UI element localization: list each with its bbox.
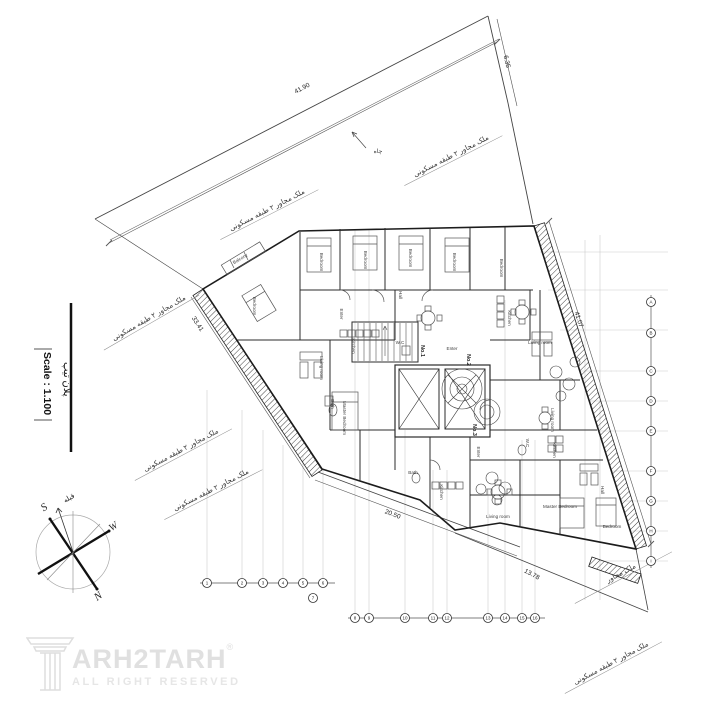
room-label: Bath — [408, 470, 418, 475]
svg-text:11: 11 — [431, 616, 436, 621]
svg-text:Bedroom: Bedroom — [319, 253, 324, 272]
svg-text:Kitchen: Kitchen — [439, 484, 444, 500]
svg-text:ملک مجاور ۲ طبقه مسکونی: ملک مجاور ۲ طبقه مسکونی — [572, 639, 650, 686]
dimension-lines — [106, 19, 654, 556]
svg-text:Living room: Living room — [486, 514, 510, 519]
svg-text:16: 16 — [532, 616, 538, 621]
svg-text:13.78: 13.78 — [523, 568, 541, 582]
well-leader — [352, 132, 366, 148]
grid-bubble: 16 — [531, 614, 540, 623]
logo-brand: ARH2TARH — [72, 644, 227, 674]
stair-core — [352, 322, 418, 362]
svg-text:Hall: Hall — [600, 486, 605, 494]
svg-text:ملک مجاور ۲ طبقه مسکونی: ملک مجاور ۲ طبقه مسکونی — [110, 293, 187, 343]
room-label: W.C — [396, 340, 405, 345]
logo-tagline: ALL RIGHT RESERVED — [72, 676, 241, 688]
compass-label: S — [39, 501, 51, 514]
room-label: Bath — [330, 399, 335, 409]
room-label: Bedroom — [319, 253, 324, 272]
svg-text:Bedroom: Bedroom — [603, 524, 622, 529]
boundary-note: ملک مجاور ۲ طبقه مسکونی — [560, 633, 662, 693]
grid-bubble: 11 — [429, 614, 438, 623]
grid-bubble: 12 — [443, 614, 452, 623]
svg-text:13: 13 — [485, 616, 491, 621]
svg-text:ملک مجاور ۲ طبقه مسکونی: ملک مجاور ۲ طبقه مسکونی — [142, 426, 220, 473]
svg-text:41.90: 41.90 — [293, 82, 311, 96]
boundary-note: ملک مجاور ۲ طبقه مسکونی — [400, 127, 503, 186]
svg-text:Bath: Bath — [408, 470, 418, 475]
svg-text:Bedroom: Bedroom — [363, 251, 368, 270]
grid-bubble: 6 — [319, 579, 328, 588]
grid-bubble: H — [647, 527, 656, 536]
boundary-note: ملک مجاور ۲ طبقه مسکونی — [99, 286, 199, 350]
grid-bubble: C — [647, 367, 656, 376]
svg-text:H: H — [649, 529, 652, 534]
svg-text:N: N — [91, 589, 105, 604]
boundary-note: ملک مجاور — [570, 543, 672, 603]
column-icon — [26, 634, 76, 694]
scale-label: Scale : 1.100 — [41, 352, 53, 415]
svg-text:Enter: Enter — [447, 346, 458, 351]
grid-bubble: 3 — [259, 579, 268, 588]
room-label: Living room — [528, 340, 552, 345]
registered-mark: ® — [227, 642, 234, 652]
svg-text:No.3: No.3 — [471, 424, 477, 436]
compass-label: قبله — [62, 492, 76, 505]
title-block: Scale : 1.100 پلان تیپ — [34, 303, 72, 452]
room-label: Bedroom — [499, 259, 504, 278]
room-label: Kitchen — [351, 338, 356, 354]
grid-bubble: 1 — [203, 579, 212, 588]
svg-text:No.1: No.1 — [419, 345, 425, 357]
svg-text:Bedroom: Bedroom — [499, 259, 504, 278]
svg-text:ملک مجاور ۲ طبقه مسکونی: ملک مجاور ۲ طبقه مسکونی — [172, 467, 251, 513]
svg-text:6.35: 6.35 — [502, 55, 512, 69]
dimension-label: 33.41 — [190, 315, 205, 333]
room-label: Master Bedroom — [342, 401, 347, 435]
grid-bubble: A — [647, 298, 656, 307]
room-label: Hall — [398, 291, 403, 299]
grid-bubble: 8 — [351, 614, 360, 623]
unit-label: No.3 — [471, 424, 477, 436]
grid-bubble: I — [647, 557, 656, 566]
dimension-label: 20.50 — [384, 508, 402, 520]
grid-bubble: 10 — [401, 614, 410, 623]
svg-text:Living room: Living room — [319, 356, 324, 380]
svg-text:G: G — [649, 499, 653, 504]
svg-text:ملک مجاور ۲ طبقه مسکونی: ملک مجاور ۲ طبقه مسکونی — [228, 187, 307, 233]
dining-table — [417, 306, 442, 330]
svg-text:33.41: 33.41 — [190, 315, 205, 333]
svg-text:E: E — [649, 429, 652, 434]
site-note: چاه — [374, 148, 383, 155]
dining-table — [511, 300, 536, 324]
svg-text:20.50: 20.50 — [384, 508, 402, 520]
grid-bubble: B — [647, 329, 656, 338]
svg-text:Bath: Bath — [330, 399, 335, 409]
room-label: Kitchen — [507, 310, 512, 326]
svg-text:Kitchen: Kitchen — [351, 338, 356, 354]
floor-plan-drawing: Scale : 1.100 پلان تیپ 41.906.3533.4141.… — [0, 0, 720, 720]
svg-text:W.C: W.C — [525, 439, 530, 448]
room-label: Bedroom — [252, 297, 257, 316]
dimension-chains — [200, 295, 651, 618]
tarh2tarh-logo: ARH2TARH® ALL RIGHT RESERVED — [26, 634, 241, 694]
room-label: Bedroom — [363, 251, 368, 270]
svg-text:Bedroom: Bedroom — [252, 297, 257, 316]
grid-bubble: 4 — [279, 579, 288, 588]
svg-text:Master Bedroom: Master Bedroom — [342, 401, 347, 435]
svg-text:Kitchen: Kitchen — [552, 442, 557, 458]
dimension-label: 6.35 — [502, 55, 512, 69]
compass-label: N — [91, 589, 105, 604]
grid-bubble: E — [647, 427, 656, 436]
svg-text:S: S — [39, 501, 51, 514]
compass-rose — [36, 508, 111, 593]
svg-text:14: 14 — [502, 616, 508, 621]
svg-text:چاه: چاه — [374, 148, 383, 155]
svg-text:Master Bedroom: Master Bedroom — [543, 504, 577, 509]
svg-text:Hall: Hall — [398, 291, 403, 299]
boundary-note: ملک مجاور ۲ طبقه مسکونی — [130, 420, 232, 480]
svg-text:A: A — [649, 300, 652, 305]
plan-type-label: پلان تیپ — [61, 362, 72, 397]
grid-bubble: 5 — [299, 579, 308, 588]
room-label: Living room — [319, 356, 324, 380]
grid-bubble: 14 — [501, 614, 510, 623]
dimension-label: 41.90 — [293, 82, 311, 96]
svg-text:Enter: Enter — [476, 447, 481, 458]
boundary-note: ملک مجاور ۲ طبقه مسکونی — [160, 461, 263, 520]
room-label: Bedroom — [452, 253, 457, 272]
room-label: Enter — [339, 309, 344, 320]
grid-bubble: 9 — [365, 614, 374, 623]
svg-text:Enter: Enter — [339, 309, 344, 320]
room-label: Kitchen — [552, 442, 557, 458]
svg-text:Kitchen: Kitchen — [507, 310, 512, 326]
svg-text:Bedroom: Bedroom — [452, 253, 457, 272]
grid-bubble: G — [647, 497, 656, 506]
room-label: Living room — [486, 514, 510, 519]
grid-bubble: F — [647, 467, 656, 476]
svg-text:12: 12 — [444, 616, 450, 621]
unit-label: No.2 — [465, 354, 471, 366]
dimension-label: 13.78 — [523, 568, 541, 582]
grid-bubble: D — [647, 397, 656, 406]
svg-text:Living room: Living room — [528, 340, 552, 345]
svg-text:قبله: قبله — [62, 492, 76, 505]
room-label: Living room — [550, 408, 555, 432]
svg-text:15: 15 — [519, 616, 525, 621]
room-label: Enter — [447, 346, 458, 351]
grid-bubble: 7 — [309, 594, 318, 603]
dining-table — [539, 407, 551, 429]
svg-text:Living room: Living room — [550, 408, 555, 432]
room-label: Kitchen — [439, 484, 444, 500]
room-label: Bedroom — [408, 249, 413, 268]
unit-label: No.1 — [419, 345, 425, 357]
svg-text:I: I — [650, 559, 651, 564]
room-label: Enter — [476, 447, 481, 458]
room-label: W.C — [525, 439, 530, 448]
grid-bubble: 2 — [238, 579, 247, 588]
building-outline — [203, 226, 636, 549]
svg-text:No.2: No.2 — [465, 354, 471, 366]
svg-text:Bedroom: Bedroom — [408, 249, 413, 268]
svg-text:10: 10 — [402, 616, 408, 621]
room-label: Hall — [600, 486, 605, 494]
room-label: Bedroom — [603, 524, 622, 529]
grid-bubble: 13 — [484, 614, 493, 623]
svg-text:B: B — [649, 331, 652, 336]
svg-text:F: F — [650, 469, 653, 474]
svg-text:W.C: W.C — [396, 340, 405, 345]
room-label: Master Bedroom — [543, 504, 577, 509]
svg-text:ملک مجاور ۲ طبقه مسکونی: ملک مجاور ۲ طبقه مسکونی — [412, 133, 491, 179]
grid-bubble: 15 — [518, 614, 527, 623]
